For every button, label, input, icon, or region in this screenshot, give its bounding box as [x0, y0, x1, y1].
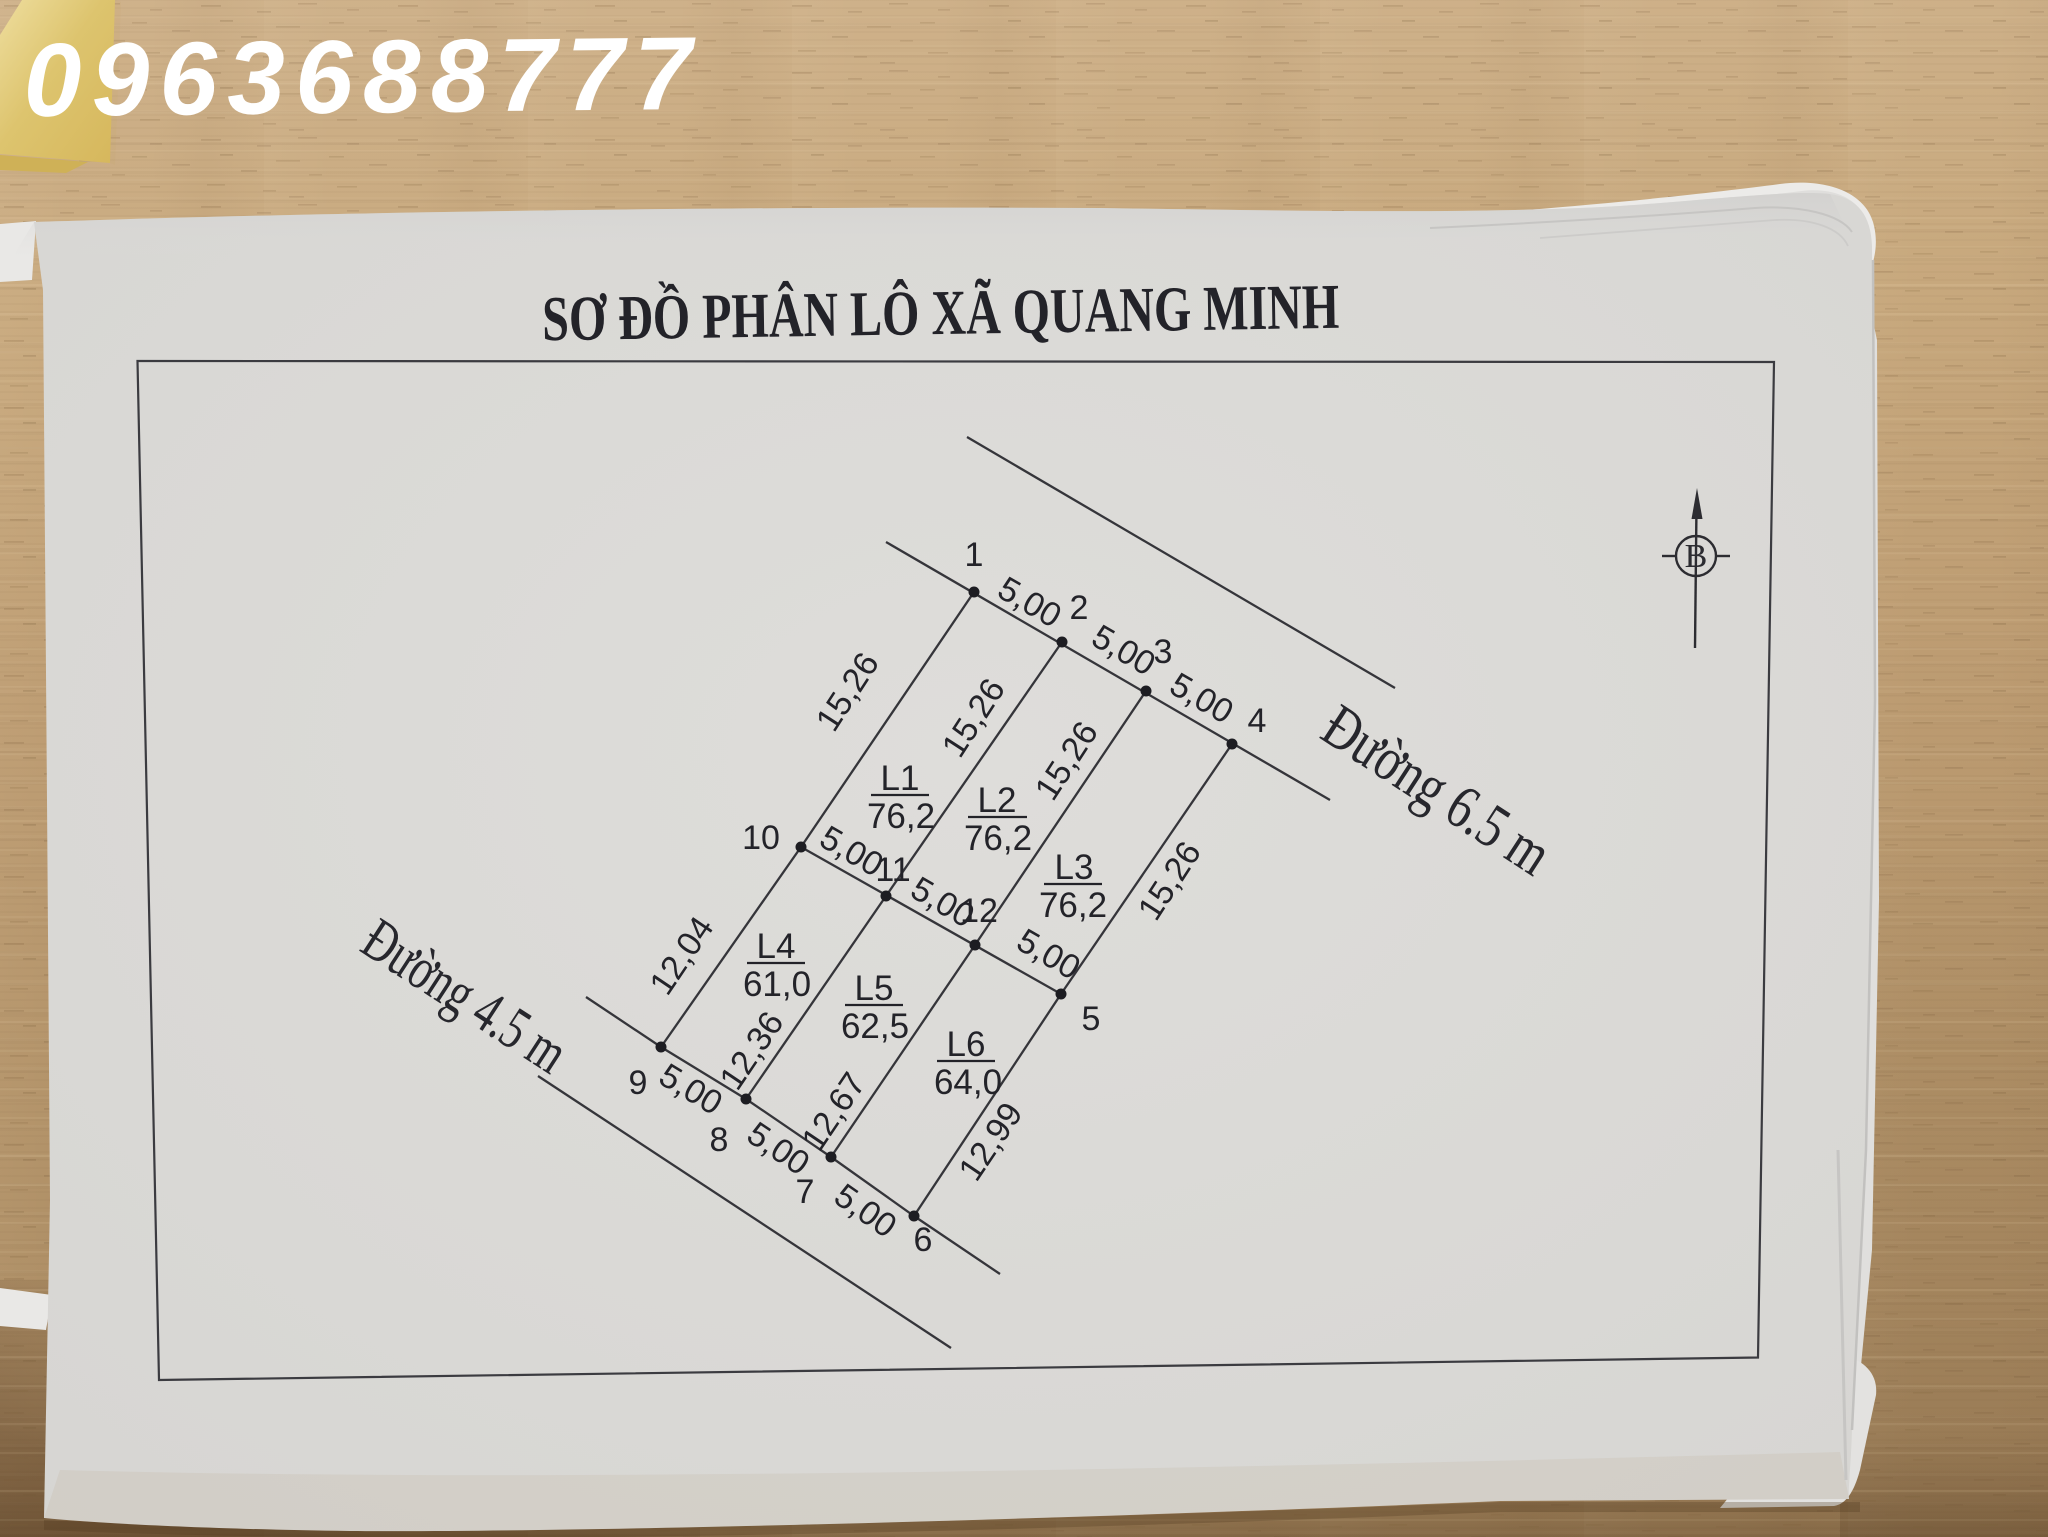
svg-text:76,2: 76,2: [964, 819, 1032, 858]
svg-text:4: 4: [1248, 702, 1267, 740]
svg-text:L1: L1: [881, 759, 920, 798]
svg-text:B: B: [1685, 538, 1708, 575]
svg-text:61,0: 61,0: [743, 965, 811, 1004]
svg-text:L5: L5: [855, 969, 894, 1008]
svg-text:7: 7: [796, 1173, 815, 1211]
svg-text:L3: L3: [1055, 848, 1094, 887]
svg-text:2: 2: [1070, 589, 1089, 627]
svg-text:9: 9: [629, 1064, 648, 1102]
svg-text:L6: L6: [947, 1025, 986, 1064]
svg-text:76,2: 76,2: [867, 797, 935, 836]
svg-text:62,5: 62,5: [841, 1007, 909, 1046]
svg-text:L2: L2: [978, 781, 1017, 820]
svg-text:1: 1: [965, 536, 984, 574]
svg-text:L4: L4: [757, 927, 796, 966]
svg-text:SƠ ĐỒ PHÂN LÔ XÃ QUANG MINH: SƠ ĐỒ PHÂN LÔ XÃ QUANG MINH: [542, 270, 1340, 355]
svg-text:6: 6: [914, 1221, 933, 1259]
svg-text:76,2: 76,2: [1039, 886, 1107, 925]
svg-text:5: 5: [1082, 1000, 1101, 1038]
svg-text:8: 8: [710, 1121, 729, 1159]
svg-text:64,0: 64,0: [934, 1063, 1002, 1102]
svg-text:10: 10: [742, 819, 780, 857]
